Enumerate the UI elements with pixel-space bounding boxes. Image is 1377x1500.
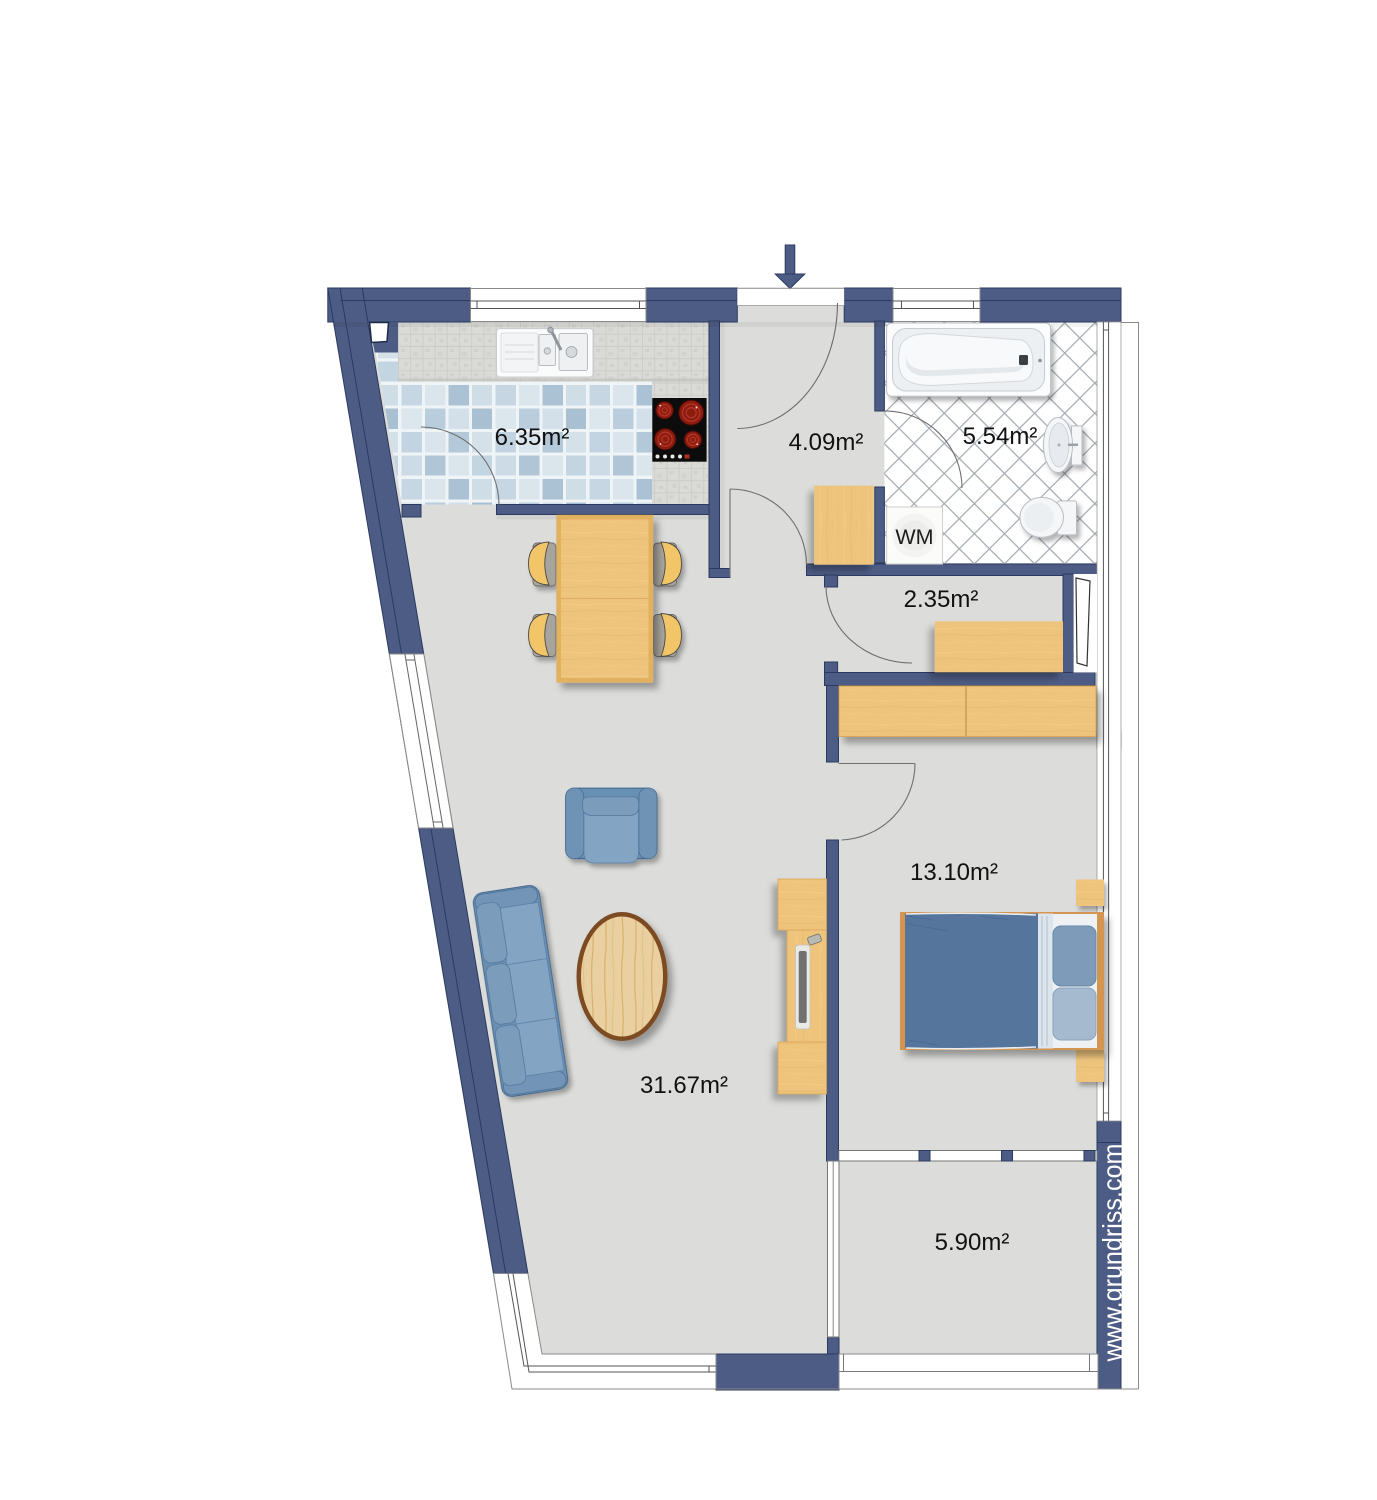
svg-text:2.35m²: 2.35m² xyxy=(904,586,979,613)
svg-text:www.grundriss.com: www.grundriss.com xyxy=(1098,1144,1128,1363)
svg-text:5.90m²: 5.90m² xyxy=(935,1229,1010,1256)
svg-text:4.09m²: 4.09m² xyxy=(789,429,864,456)
svg-text:6.35m²: 6.35m² xyxy=(495,424,570,451)
svg-text:31.67m²: 31.67m² xyxy=(640,1072,728,1099)
svg-text:13.10m²: 13.10m² xyxy=(910,859,998,886)
svg-text:5.54m²: 5.54m² xyxy=(963,423,1038,450)
svg-text:WM: WM xyxy=(895,525,933,549)
